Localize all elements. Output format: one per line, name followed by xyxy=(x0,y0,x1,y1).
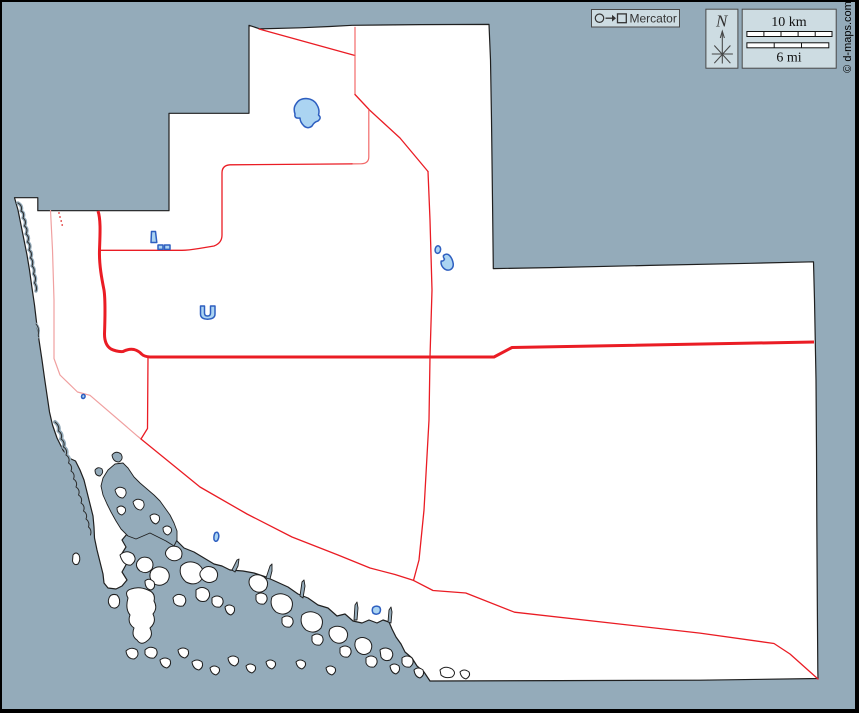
svg-text:© d-maps.com: © d-maps.com xyxy=(842,1,854,73)
svg-text:Mercator: Mercator xyxy=(630,11,677,25)
svg-text:N: N xyxy=(715,12,729,31)
svg-text:6 mi: 6 mi xyxy=(776,51,801,66)
svg-text:10 km: 10 km xyxy=(771,15,807,30)
